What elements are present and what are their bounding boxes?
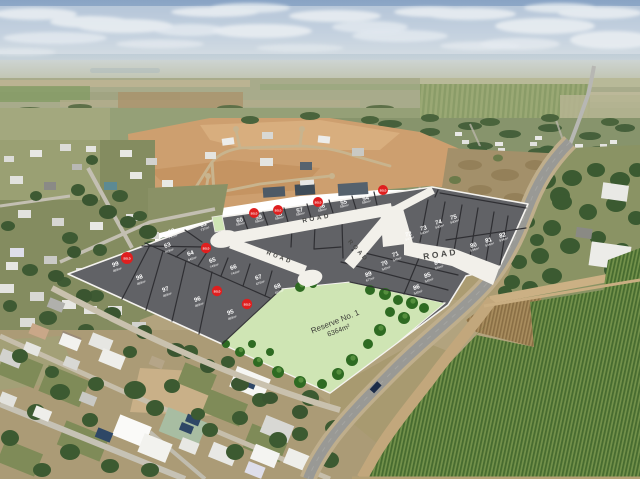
svg-text:SOLD: SOLD [214, 291, 221, 294]
svg-text:SOLD: SOLD [203, 248, 210, 251]
svg-text:SOLD: SOLD [244, 304, 251, 307]
svg-text:SOLD: SOLD [380, 190, 387, 193]
svg-text:SOLD: SOLD [251, 213, 258, 216]
svg-text:SOLD: SOLD [315, 202, 322, 205]
svg-text:SOLD: SOLD [123, 257, 130, 261]
svg-text:SOLD: SOLD [275, 210, 282, 213]
